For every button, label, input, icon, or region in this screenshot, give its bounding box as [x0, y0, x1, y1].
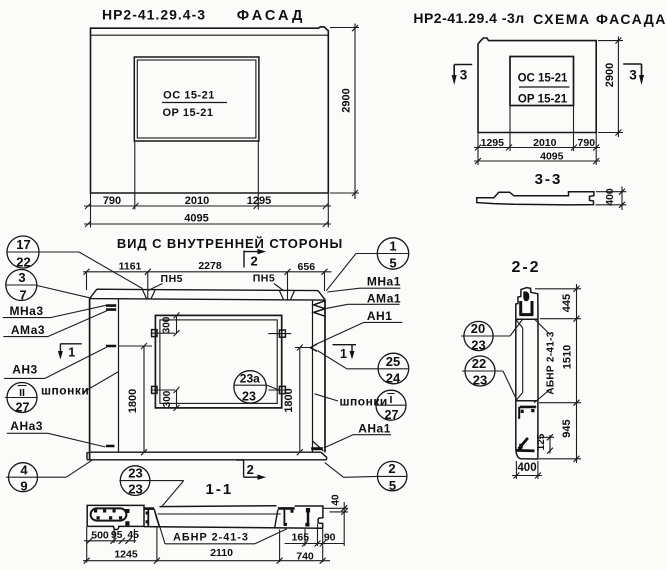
svg-text:5: 5	[389, 478, 396, 493]
svg-text:2010: 2010	[185, 195, 209, 207]
svg-text:ФАСАД: ФАСАД	[237, 8, 306, 24]
svg-text:7: 7	[19, 288, 26, 303]
svg-text:АМа3: АМа3	[11, 323, 45, 337]
svg-text:5: 5	[389, 256, 396, 271]
svg-text:1161: 1161	[119, 261, 142, 273]
svg-text:23: 23	[473, 373, 487, 388]
svg-text:23: 23	[128, 482, 142, 497]
svg-text:400: 400	[604, 188, 616, 206]
svg-text:1800: 1800	[283, 388, 295, 412]
svg-text:ВИД С ВНУТРЕННЕЙ СТОРОНЫ: ВИД С ВНУТРЕННЕЙ СТОРОНЫ	[117, 236, 343, 251]
svg-text:1295: 1295	[481, 137, 505, 149]
svg-text:24: 24	[386, 371, 401, 386]
svg-text:125: 125	[536, 433, 547, 450]
svg-text:27: 27	[385, 408, 399, 422]
svg-text:4095: 4095	[540, 151, 564, 163]
svg-text:20: 20	[471, 321, 485, 336]
svg-text:23а: 23а	[240, 372, 260, 386]
svg-text:АБНР 2-41-3: АБНР 2-41-3	[546, 331, 557, 394]
svg-text:4095: 4095	[184, 213, 208, 225]
svg-text:ПН5: ПН5	[161, 273, 183, 285]
svg-text:ПН5: ПН5	[253, 273, 275, 285]
svg-text:НР2-41.29.4 -3л: НР2-41.29.4 -3л	[413, 10, 524, 26]
svg-text:1800: 1800	[127, 389, 139, 413]
svg-text:АБНР 2-41-3: АБНР 2-41-3	[173, 532, 249, 544]
svg-text:МНа1: МНа1	[367, 275, 401, 289]
svg-text:945: 945	[561, 419, 573, 437]
svg-text:ІІ: ІІ	[19, 387, 25, 399]
svg-text:3-3: 3-3	[535, 171, 563, 188]
svg-text:2010: 2010	[533, 137, 557, 149]
svg-text:1-1: 1-1	[206, 481, 234, 498]
svg-text:90: 90	[324, 532, 336, 544]
svg-text:2900: 2900	[604, 63, 616, 87]
svg-text:СХЕМА ФАСАДА: СХЕМА ФАСАДА	[533, 11, 667, 27]
svg-text:АНа1: АНа1	[358, 422, 391, 436]
svg-text:2-2: 2-2	[511, 259, 540, 276]
svg-text:40: 40	[331, 494, 342, 506]
svg-text:45: 45	[127, 529, 139, 541]
svg-text:3: 3	[18, 270, 25, 285]
svg-text:МНа3: МНа3	[10, 304, 44, 318]
svg-text:400: 400	[517, 462, 536, 474]
svg-text:300: 300	[162, 390, 173, 407]
svg-text:165: 165	[292, 532, 310, 544]
svg-text:1295: 1295	[247, 195, 271, 207]
svg-text:2: 2	[388, 461, 395, 476]
svg-text:500: 500	[91, 530, 109, 542]
svg-text:2: 2	[247, 462, 254, 477]
svg-text:АН3: АН3	[12, 363, 38, 377]
svg-text:АН1: АН1	[367, 309, 393, 323]
svg-text:9: 9	[20, 479, 27, 494]
svg-text:740: 740	[296, 551, 314, 563]
svg-text:2900: 2900	[341, 88, 353, 112]
svg-text:НР2-41.29.4-3: НР2-41.29.4-3	[102, 7, 206, 23]
svg-text:ОР 15-21: ОР 15-21	[162, 107, 213, 119]
svg-text:445: 445	[561, 294, 573, 312]
svg-text:3: 3	[460, 68, 468, 83]
svg-text:790: 790	[578, 137, 596, 149]
svg-text:І: І	[390, 394, 393, 406]
svg-text:790: 790	[103, 195, 121, 207]
svg-text:ОС 15-21: ОС 15-21	[518, 73, 568, 85]
svg-text:1245: 1245	[114, 549, 138, 561]
svg-text:1: 1	[340, 347, 347, 361]
svg-text:ОС 15-21: ОС 15-21	[163, 90, 215, 102]
svg-text:656: 656	[298, 261, 316, 273]
svg-text:17: 17	[16, 237, 30, 252]
svg-text:2110: 2110	[210, 547, 233, 559]
svg-text:2278: 2278	[198, 260, 222, 272]
svg-text:27: 27	[16, 401, 30, 415]
svg-text:ОР 15-21: ОР 15-21	[518, 94, 568, 106]
svg-text:1510: 1510	[562, 345, 574, 369]
svg-text:4: 4	[20, 463, 28, 478]
svg-text:2: 2	[251, 254, 258, 269]
svg-text:шпонки: шпонки	[340, 395, 388, 409]
svg-text:АМа1: АМа1	[367, 292, 401, 306]
svg-text:25: 25	[386, 354, 400, 369]
svg-text:АНа3: АНа3	[10, 419, 43, 433]
svg-text:3: 3	[629, 68, 637, 83]
svg-text:22: 22	[472, 356, 486, 371]
svg-text:300: 300	[162, 316, 173, 333]
svg-text:23: 23	[242, 390, 256, 404]
svg-text:шпонки: шпонки	[41, 384, 89, 398]
svg-text:23: 23	[128, 466, 142, 481]
svg-text:1: 1	[68, 346, 75, 360]
svg-text:23: 23	[471, 338, 485, 353]
svg-text:22: 22	[16, 255, 30, 270]
svg-text:1: 1	[389, 239, 396, 254]
svg-text:95: 95	[111, 529, 123, 541]
